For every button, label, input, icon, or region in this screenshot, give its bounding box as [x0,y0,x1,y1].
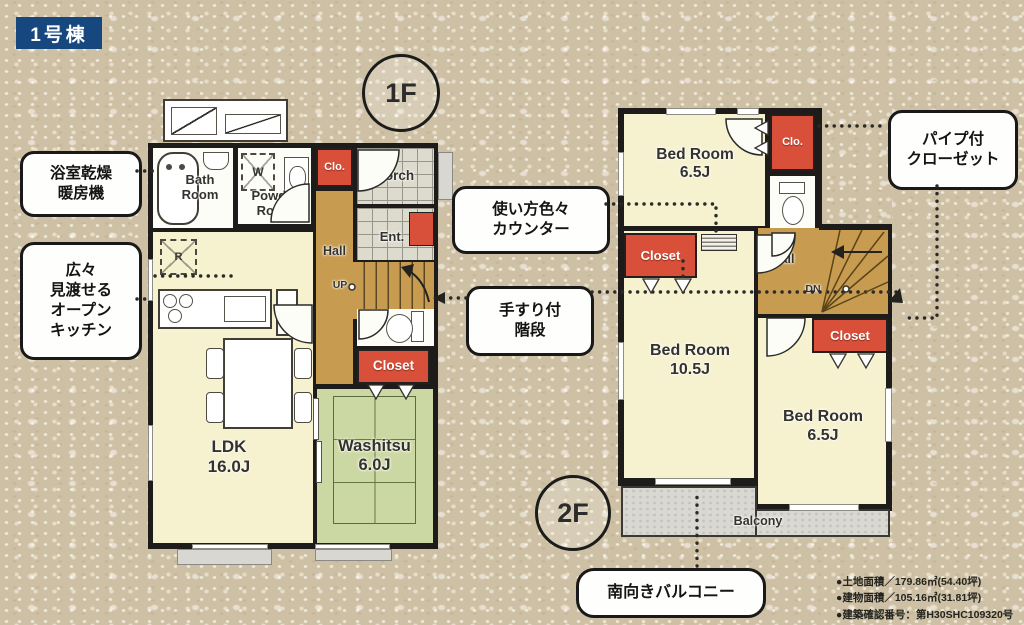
window [618,342,624,400]
clo-label-2f: Clo. [782,137,803,149]
chair [294,392,312,423]
sliding-door [313,398,319,440]
hall-2f [758,228,819,314]
shower-counter-icon [203,152,229,170]
legal-area-text: ●土地面積／179.86㎡(54.40坪)●建物面積／105.16㎡(31.81… [836,574,1022,623]
counter-icon-2f [701,234,737,251]
terrace-step [177,549,272,565]
window [789,504,859,511]
bathtub-faucet-icon [166,164,172,170]
stairs-2f [819,230,888,314]
building-badge: 1号棟 [16,17,102,49]
floor1-circle: 1F [362,54,440,132]
washing-machine-icon: W [241,153,275,191]
powder-label: PowderRoom [240,188,310,219]
hall-label-2f: Hall [762,252,804,267]
plan-2f-notch [822,106,892,224]
bedroom-north-label: Bed Room6.5J [652,146,738,183]
chair [206,348,224,379]
toilet-bowl-icon-1f [386,314,413,343]
up-label: UP [326,279,354,291]
callout-handrail-stairs: 手すり付階段 [466,286,594,356]
terrace-step [315,549,392,561]
stove-burner-icon [163,294,177,308]
dining-table [223,338,293,429]
sink-bowl-icon [289,166,306,189]
balcony-2f [621,486,757,537]
ent-label: Ent. [367,229,417,244]
chair [206,392,224,423]
sliding-door [316,441,322,483]
balcony-label: Balcony [722,514,794,529]
closet-1f: Closet [357,349,430,384]
callout-open-kitchen: 広々見渡せるオープンキッチン [20,242,142,360]
clo-label-1f: Clo. [324,162,345,174]
toilet-tank-icon-2f [779,182,805,194]
equipment-icon [225,114,281,134]
window [666,108,716,115]
link-pipe-closet-down [906,186,937,318]
callout-south-balcony: 南向きバルコニー [576,568,766,618]
ldk-label: LDK16.0J [192,437,266,477]
window [148,259,153,301]
fridge-mark: R [175,251,183,263]
callout-bath-dryer: 浴室乾燥暖房機 [20,151,142,217]
closet-label-1f: Closet [373,359,414,373]
closet-east-label: Closet [830,329,870,343]
window [148,425,153,481]
porch-step [438,152,453,200]
closet-clo-1f: Clo. [316,148,353,187]
window [885,388,892,442]
closet-clo-2f: Clo. [770,114,815,171]
closet-east-2f: Closet [812,318,888,353]
washitsu-label: Washitsu6.0J [323,437,426,476]
window [655,478,731,485]
chair [294,348,312,379]
closet-west-2f: Closet [624,233,697,278]
stove-burner-icon [168,309,182,323]
kitchen-counter-end [276,289,298,336]
washer-mark: W [252,165,263,179]
hall-label-1f: Hall [317,244,352,259]
bedroom-main-label: Bed Room10.5J [648,342,732,380]
dn-label: DN [800,283,826,295]
window [618,152,624,196]
porch-label: Porch [365,168,425,184]
floorplan-flyer: 1号棟 1F 2F W Clo. Closet R [0,0,1024,625]
fridge-space-icon: R [160,239,197,275]
bedroom-south-label: Bed Room6.5J [782,408,864,446]
bath-label: BathRoom [168,172,232,203]
water-heater-unit [163,99,288,142]
callout-pipe-closet: パイプ付クローゼット [888,110,1018,190]
window [737,108,759,115]
closet-west-label: Closet [641,249,681,263]
stove-burner-icon [179,294,193,308]
equipment-icon [171,107,217,135]
kitchen-sink-icon [224,296,266,322]
toilet-bowl-icon-2f [782,196,804,225]
floor2-circle: 2F [535,475,611,551]
callout-multi-counter: 使い方色々カウンター [452,186,610,254]
